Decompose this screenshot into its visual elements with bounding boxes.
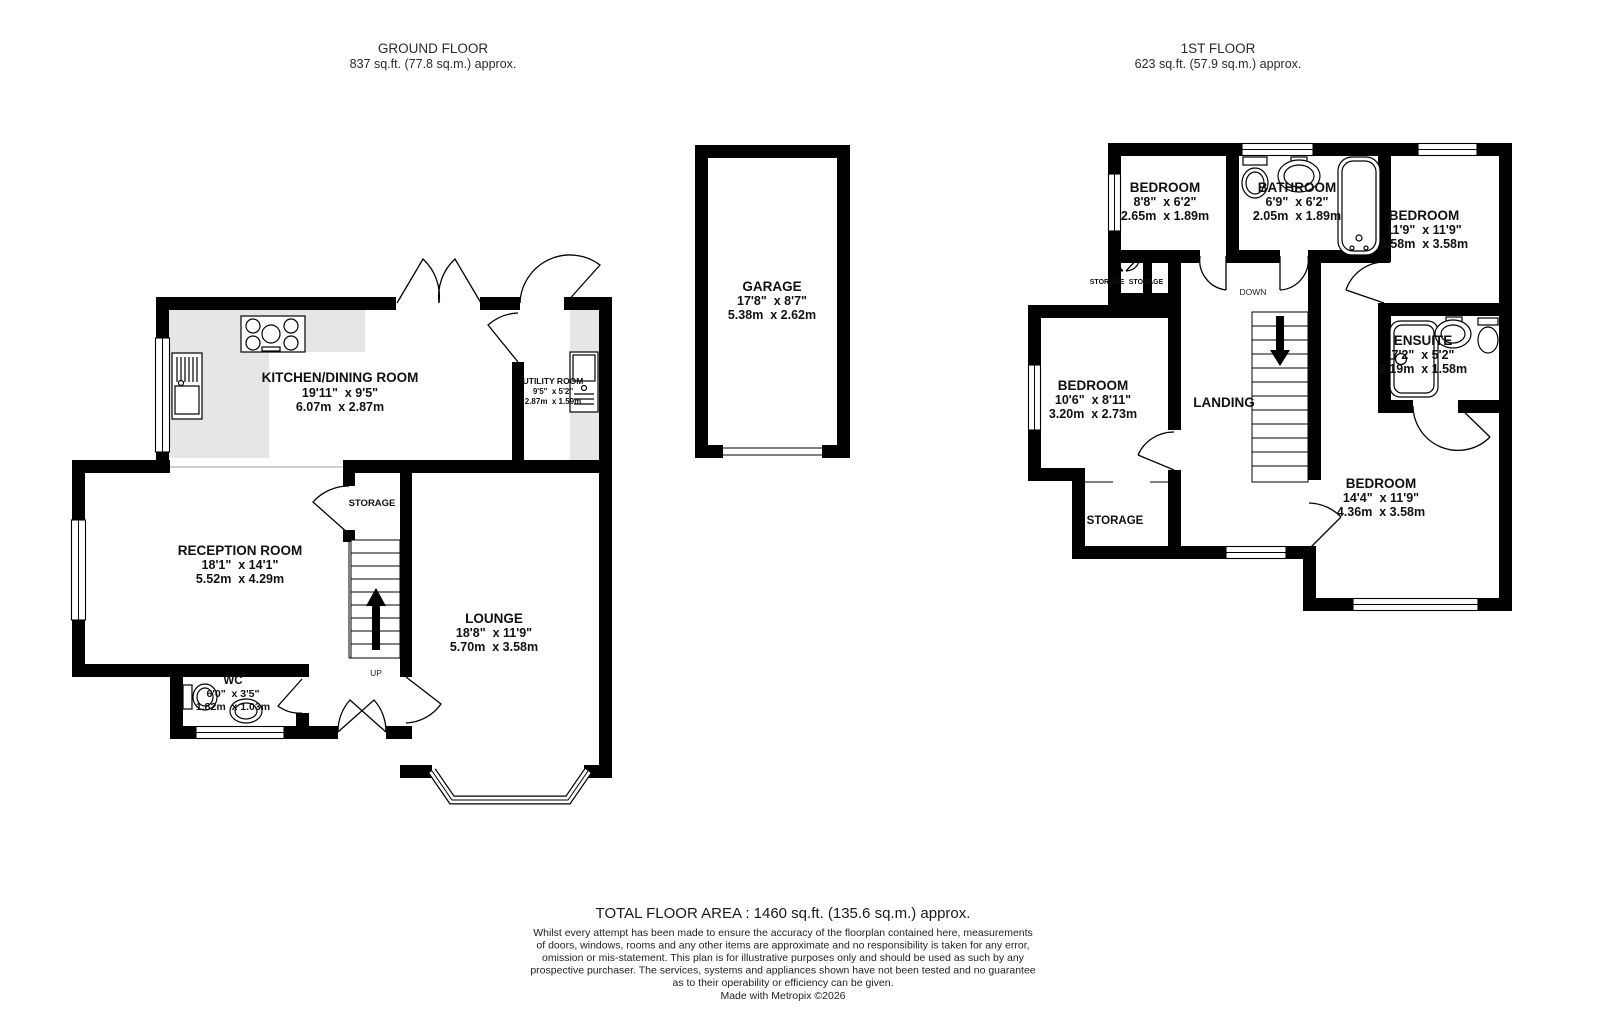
bedroom-top-left-label: BEDROOM [1130,180,1201,195]
wc-dims-imperial: 6'0" x 3'5" [207,688,260,700]
front-door-arc-b [338,700,386,732]
floorplan-canvas: GROUND FLOOR 837 sq.ft. (77.8 sq.m.) app… [0,0,1600,1021]
disclaimer-line-3: omission or mis-statement. This plan is … [542,952,1025,964]
ensuite-imperial: 7'2" x 5'2" [1392,348,1455,362]
kitchen-dims-metric: 6.07m x 2.87m [296,400,384,414]
bedroom-mid-left-label: BEDROOM [1058,378,1129,393]
storage-small-b-label: STORAGE [1129,279,1164,286]
wc-dims-metric: 1.82m x 1.03m [196,701,270,713]
first-stairs [1252,312,1308,482]
first-floor-area: 623 sq.ft. (57.9 sq.m.) approx. [1135,57,1302,71]
bedroom-top-right-imperial: 11'9" x 11'9" [1386,223,1462,237]
disclaimer-line-1: Whilst every attempt has been made to en… [533,927,1033,939]
utility-dims-metric: 2.87m x 1.59m [525,397,581,406]
bathroom-label: BATHROOM [1258,180,1337,195]
bedroom-top-right-metric: 3.58m x 3.58m [1380,237,1468,251]
ground-floor-plan: GROUND FLOOR 837 sq.ft. (77.8 sq.m.) app… [72,41,613,800]
wc-door [278,679,302,713]
utility-dims-imperial: 9'5" x 5'2" [533,387,574,396]
up-label: UP [370,668,382,678]
ensuite-metric: 2.19m x 1.58m [1379,362,1467,376]
bedroom-bottom-right-metric: 4.36m x 3.58m [1337,505,1425,519]
ground-floor-title: GROUND FLOOR [378,41,489,56]
bath-icon [1338,157,1380,255]
bedroom-mid-left-metric: 3.20m x 2.73m [1049,407,1137,421]
first-storage-label: STORAGE [1087,515,1144,527]
reception-label: RECEPTION ROOM [178,543,303,558]
kitchen-dims-imperial: 19'11" x 9'5" [302,386,378,400]
bathroom-door [1280,256,1308,290]
metropix-credit: Made with Metropix ©2026 [720,990,845,1002]
hob-icon [241,316,305,352]
ground-floor-area: 837 sq.ft. (77.8 sq.m.) approx. [350,57,517,71]
garage-dims-metric: 5.38m x 2.62m [728,308,816,322]
bedroom-bottom-right-imperial: 14'4" x 11'9" [1343,491,1419,505]
lounge-dims-metric: 5.70m x 3.58m [450,640,538,654]
storage-door [313,486,349,534]
garage-dims-imperial: 17'8" x 8'7" [737,294,807,308]
bedroom-top-left-imperial: 8'8" x 6'2" [1134,195,1197,209]
bathroom-metric: 2.05m x 1.89m [1253,209,1341,223]
lounge-door [406,677,441,723]
first-floor-plan: 1ST FLOOR 623 sq.ft. (57.9 sq.m.) approx… [1028,41,1512,611]
ensuite-toilet-icon [1478,318,1498,353]
reception-dims-metric: 5.52m x 4.29m [196,572,284,586]
landing-label: LANDING [1193,395,1255,410]
wc-label: WC [223,675,242,687]
disclaimer-line-4: prospective purchaser. The services, sys… [530,965,1035,977]
kitchen-sink-icon [172,353,202,419]
bathroom-imperial: 6'9" x 6'2" [1266,195,1329,209]
bay-window [432,771,588,800]
first-floor-title: 1ST FLOOR [1181,41,1256,56]
garage-plan: GARAGE 17'8" x 8'7" 5.38m x 2.62m [695,145,850,458]
utility-label: UTILITY ROOM [523,376,584,386]
garage-label: GARAGE [742,279,801,294]
footer: TOTAL FLOOR AREA : 1460 sq.ft. (135.6 sq… [530,905,1035,1002]
front-door-arc-a [338,700,386,732]
bedroom-mid-left-door [1138,432,1174,470]
disclaimer-line-2: of doors, windows, rooms and any other i… [536,940,1029,952]
reception-dims-imperial: 18'1" x 14'1" [202,558,279,572]
lounge-label: LOUNGE [465,611,523,626]
down-label: DOWN [1240,287,1267,297]
kitchen-label: KITCHEN/DINING ROOM [262,370,419,385]
ground-storage-label: STORAGE [349,498,396,509]
storage-small-a-label: STORAGE [1090,279,1125,286]
bedroom-bottom-right-label: BEDROOM [1346,476,1417,491]
disclaimer-line-5: as to their operability or efficiency ca… [672,977,893,989]
utility-door [488,313,518,362]
bedroom-top-left-metric: 2.65m x 1.89m [1121,209,1209,223]
bedroom-top-right-label: BEDROOM [1389,208,1460,223]
bedroom-top-right-door [1346,262,1384,303]
ground-stairs [351,540,400,658]
french-door-right [439,259,481,303]
total-floor-area: TOTAL FLOOR AREA : 1460 sq.ft. (135.6 sq… [596,905,971,922]
back-door [520,255,600,303]
ensuite-label: ENSUITE [1394,333,1453,348]
bedroom-top-left-door [1200,256,1226,290]
lounge-dims-imperial: 18'8" x 11'9" [456,626,532,640]
bedroom-mid-left-imperial: 10'6" x 8'11" [1055,393,1131,407]
french-door-left [397,259,439,303]
garage-door [723,448,822,455]
